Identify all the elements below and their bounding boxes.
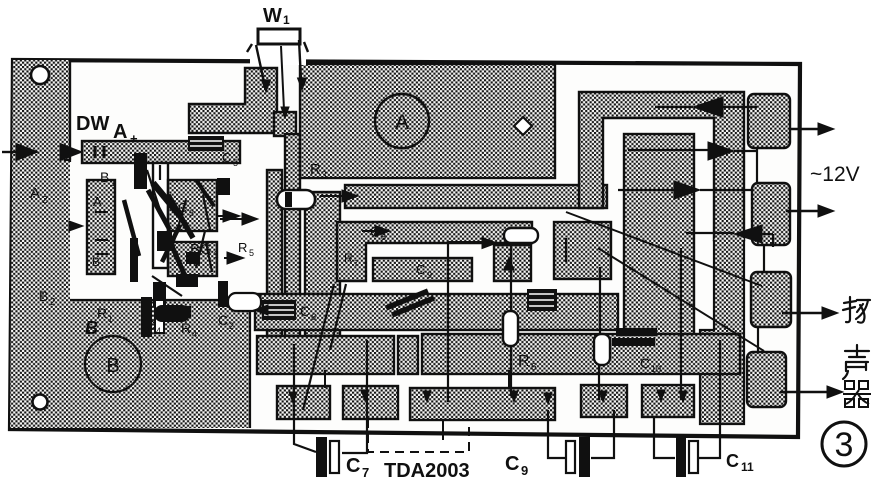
svg-text:B: B xyxy=(92,255,100,269)
svg-text:DW: DW xyxy=(76,113,109,135)
svg-text:2: 2 xyxy=(229,321,234,331)
svg-text:C: C xyxy=(416,262,425,277)
svg-text:A: A xyxy=(113,121,127,143)
svg-text:~12V: ~12V xyxy=(810,163,860,186)
svg-text:2: 2 xyxy=(50,297,56,308)
svg-text:6: 6 xyxy=(531,362,537,373)
svg-text:6: 6 xyxy=(311,312,316,322)
svg-text:5: 5 xyxy=(249,248,254,258)
svg-text:C: C xyxy=(346,455,360,477)
svg-text:1: 1 xyxy=(108,314,113,324)
svg-text:3: 3 xyxy=(189,208,194,218)
svg-text:9: 9 xyxy=(427,270,432,280)
svg-text:2: 2 xyxy=(42,195,48,206)
svg-text:C: C xyxy=(218,312,228,328)
svg-text:C: C xyxy=(178,200,187,215)
svg-text:B: B xyxy=(85,318,98,338)
svg-text:+: + xyxy=(130,131,138,146)
svg-text:C: C xyxy=(640,355,650,371)
svg-text:A: A xyxy=(395,111,409,134)
svg-text:8: 8 xyxy=(381,232,386,242)
svg-text:R: R xyxy=(97,305,107,321)
svg-text:1: 1 xyxy=(213,250,219,261)
svg-text:7: 7 xyxy=(362,465,369,480)
svg-text:C: C xyxy=(300,303,310,319)
svg-text:R: R xyxy=(181,320,191,336)
svg-text:4: 4 xyxy=(156,326,161,336)
svg-text:R: R xyxy=(310,161,321,178)
svg-text:C: C xyxy=(222,150,231,165)
svg-text:3: 3 xyxy=(835,426,854,464)
svg-text:A: A xyxy=(30,185,40,202)
svg-text:5: 5 xyxy=(233,158,238,168)
svg-text:7: 7 xyxy=(354,259,359,268)
svg-text:3: 3 xyxy=(321,170,327,181)
svg-text:BG: BG xyxy=(190,241,212,258)
svg-text:R: R xyxy=(238,240,247,255)
svg-text:R: R xyxy=(344,251,353,265)
svg-text:1: 1 xyxy=(111,178,116,188)
svg-text:B: B xyxy=(39,288,48,304)
svg-text:C: C xyxy=(505,453,519,475)
svg-text:TDA2003: TDA2003 xyxy=(384,460,470,482)
svg-text:C: C xyxy=(726,451,739,471)
svg-text:11: 11 xyxy=(741,460,754,474)
svg-text:10: 10 xyxy=(651,364,661,374)
svg-text:4: 4 xyxy=(192,329,197,339)
svg-text:9: 9 xyxy=(521,463,528,478)
svg-text:R: R xyxy=(518,353,530,370)
svg-text:A: A xyxy=(93,194,102,209)
svg-text:1: 1 xyxy=(283,13,290,27)
svg-text:B: B xyxy=(100,169,109,185)
svg-text:C: C xyxy=(370,224,379,239)
svg-text:B: B xyxy=(106,355,119,377)
svg-text:W: W xyxy=(263,5,282,27)
svg-text:C: C xyxy=(145,317,155,333)
